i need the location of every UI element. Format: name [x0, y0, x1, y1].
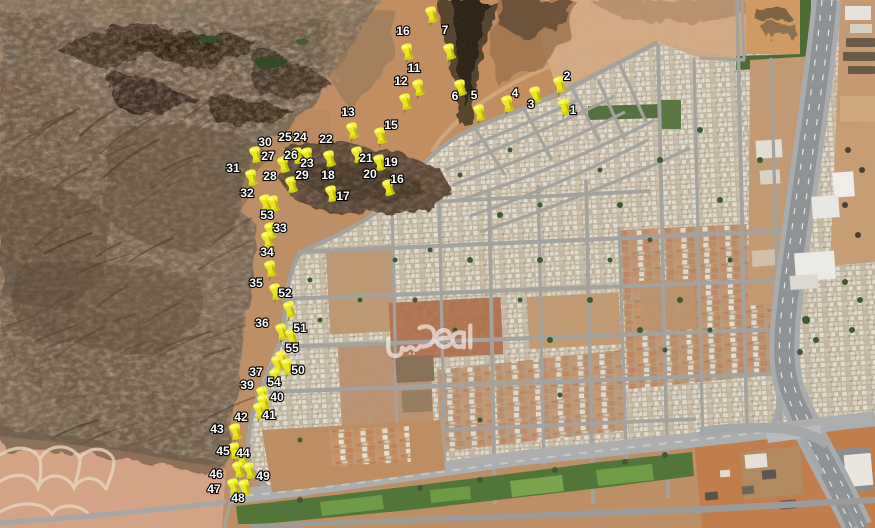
svg-text:12: 12 [394, 74, 408, 88]
svg-text:24: 24 [293, 130, 307, 144]
svg-text:29: 29 [295, 168, 309, 182]
svg-text:26: 26 [284, 148, 298, 162]
svg-text:25: 25 [278, 130, 292, 144]
svg-text:54: 54 [267, 375, 281, 389]
svg-text:32: 32 [240, 186, 254, 200]
svg-text:48: 48 [231, 491, 245, 505]
svg-text:16: 16 [390, 172, 404, 186]
svg-text:41: 41 [262, 408, 276, 422]
svg-text:18: 18 [321, 168, 335, 182]
svg-text:40: 40 [270, 390, 284, 404]
svg-text:44: 44 [236, 446, 250, 460]
svg-text:35: 35 [249, 276, 263, 290]
svg-text:22: 22 [319, 132, 333, 146]
svg-text:6: 6 [452, 89, 459, 103]
svg-text:20: 20 [363, 167, 377, 181]
svg-text:36: 36 [255, 316, 269, 330]
svg-text:55: 55 [285, 341, 299, 355]
svg-text:33: 33 [273, 221, 287, 235]
svg-text:27: 27 [261, 149, 275, 163]
svg-text:11: 11 [408, 61, 421, 75]
svg-text:2: 2 [564, 69, 571, 83]
svg-text:15: 15 [384, 118, 398, 132]
svg-text:37: 37 [249, 365, 263, 379]
svg-text:31: 31 [226, 161, 240, 175]
svg-text:7: 7 [442, 23, 449, 37]
svg-text:1: 1 [570, 103, 577, 117]
svg-text:13: 13 [341, 105, 355, 119]
svg-text:30: 30 [258, 135, 272, 149]
svg-text:50: 50 [291, 363, 305, 377]
svg-text:53: 53 [260, 208, 274, 222]
svg-text:43: 43 [210, 422, 224, 436]
svg-text:51: 51 [293, 321, 307, 335]
svg-text:21: 21 [359, 151, 373, 165]
svg-text:28: 28 [263, 169, 277, 183]
svg-text:39: 39 [240, 378, 254, 392]
svg-text:46: 46 [209, 467, 223, 481]
svg-text:45: 45 [216, 444, 230, 458]
svg-text:34: 34 [260, 245, 274, 259]
svg-text:4: 4 [512, 86, 519, 100]
svg-text:49: 49 [256, 469, 270, 483]
svg-text:19: 19 [384, 155, 398, 169]
svg-text:3: 3 [528, 97, 535, 111]
svg-text:16: 16 [396, 24, 410, 38]
svg-text:47: 47 [207, 482, 221, 496]
svg-text:17: 17 [336, 189, 350, 203]
svg-text:42: 42 [234, 410, 248, 424]
svg-text:5: 5 [471, 88, 478, 102]
svg-text:52: 52 [278, 286, 292, 300]
